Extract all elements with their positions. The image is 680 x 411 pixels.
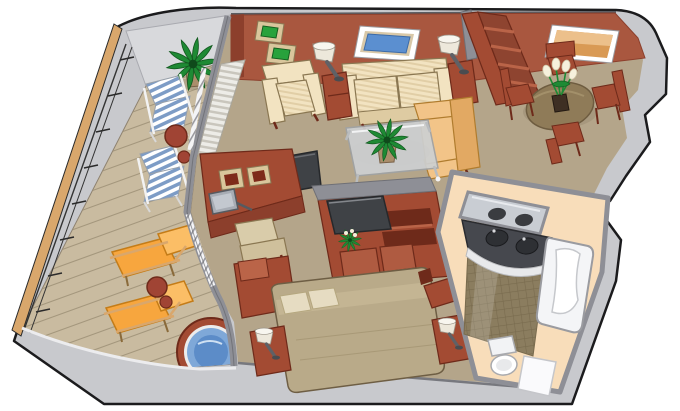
bed-pillow-2 (308, 288, 339, 309)
wall-art-blue (354, 26, 420, 61)
floor-plan-illustration (0, 0, 680, 411)
bed-pillow-1 (280, 292, 311, 314)
cabinet-tv (327, 196, 391, 234)
wall-art-green-1 (255, 21, 284, 43)
suite-floor-plan (0, 0, 680, 411)
media-cabinet (312, 177, 452, 286)
bed (272, 268, 445, 393)
wall-art-green-2 (266, 43, 296, 65)
shower-mat (518, 356, 556, 396)
